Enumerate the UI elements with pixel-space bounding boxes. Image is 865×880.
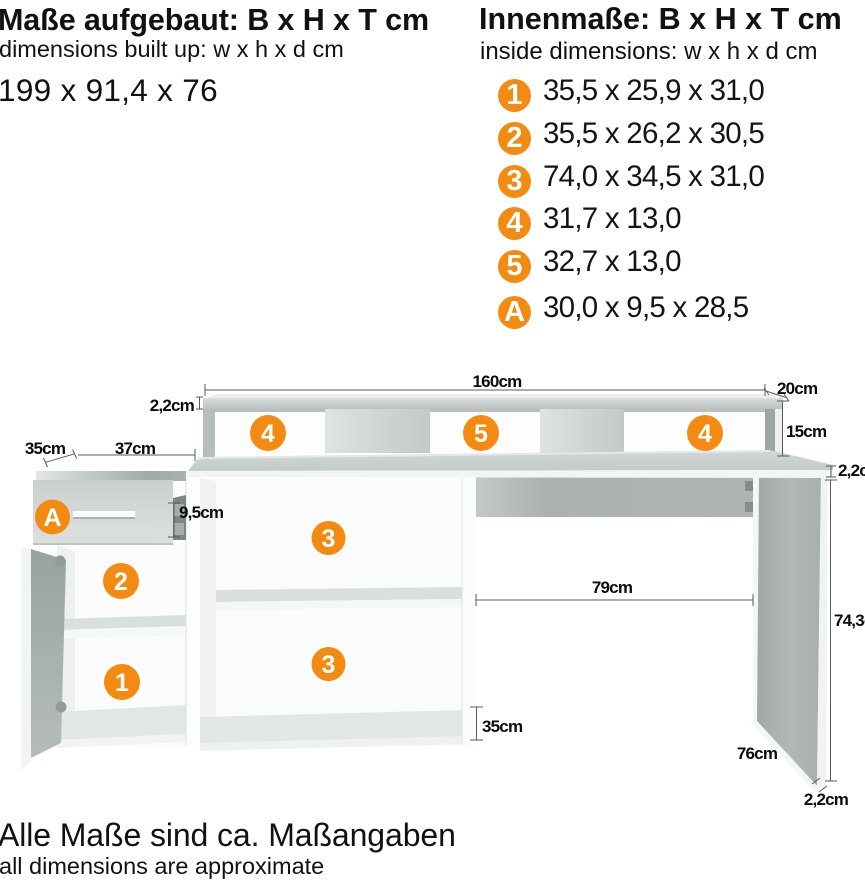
svg-text:74,3c: 74,3c	[834, 611, 865, 630]
svg-text:35cm: 35cm	[482, 717, 523, 736]
svg-text:35cm: 35cm	[25, 439, 66, 458]
svg-text:2: 2	[114, 568, 128, 596]
svg-text:5: 5	[474, 420, 488, 448]
svg-text:2,2cm: 2,2cm	[150, 396, 195, 415]
svg-text:2,2c: 2,2c	[838, 461, 865, 480]
svg-text:79cm: 79cm	[592, 578, 633, 597]
svg-text:76cm: 76cm	[737, 744, 778, 763]
svg-text:15cm: 15cm	[786, 422, 827, 441]
svg-text:20cm: 20cm	[777, 379, 818, 398]
svg-text:A: A	[43, 504, 61, 532]
svg-text:37cm: 37cm	[115, 439, 156, 458]
svg-text:4: 4	[261, 420, 275, 448]
svg-text:3: 3	[322, 651, 336, 679]
svg-text:1: 1	[115, 669, 129, 697]
svg-text:3: 3	[322, 525, 336, 553]
svg-text:2,2cm: 2,2cm	[804, 790, 849, 809]
svg-text:160cm: 160cm	[473, 372, 523, 391]
svg-text:4: 4	[698, 420, 712, 448]
svg-text:9,5cm: 9,5cm	[179, 503, 224, 522]
